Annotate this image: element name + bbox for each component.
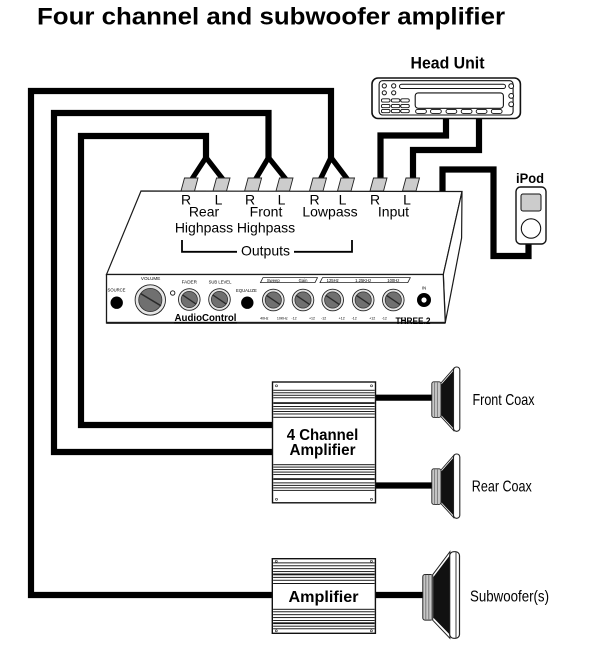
svg-text:-12: -12 <box>352 317 357 321</box>
svg-text:Gain: Gain <box>299 278 309 283</box>
svg-text:Amplifier: Amplifier <box>290 442 356 459</box>
svg-text:100Hz: 100Hz <box>387 278 399 283</box>
svg-text:THREE.2: THREE.2 <box>396 316 431 327</box>
svg-text:Front: Front <box>250 204 283 220</box>
svg-text:Four channel and subwoofer amp: Four channel and subwoofer amplifier <box>37 4 505 31</box>
svg-text:iPod: iPod <box>516 171 544 186</box>
svg-text:Rear: Rear <box>189 204 220 220</box>
svg-text:+12: +12 <box>369 317 375 321</box>
svg-text:-12: -12 <box>291 317 296 321</box>
svg-text:-12: -12 <box>382 317 387 321</box>
svg-text:-12: -12 <box>321 317 326 321</box>
svg-text:Rear Coax: Rear Coax <box>472 479 532 496</box>
svg-text:Highpass: Highpass <box>175 220 233 236</box>
svg-text:Front Coax: Front Coax <box>473 392 535 409</box>
svg-text:+12: +12 <box>339 317 345 321</box>
svg-text:10KHz: 10KHz <box>277 317 288 321</box>
svg-text:125Hz: 125Hz <box>327 278 339 283</box>
svg-text:EQUALIZE: EQUALIZE <box>236 288 257 293</box>
svg-text:IN: IN <box>422 286 426 291</box>
svg-text:40Hz: 40Hz <box>260 317 269 321</box>
svg-text:Lowpass: Lowpass <box>302 204 357 220</box>
svg-text:SOURCE: SOURCE <box>108 288 126 293</box>
svg-text:Head Unit: Head Unit <box>411 55 485 73</box>
svg-text:Highpass: Highpass <box>237 220 295 236</box>
svg-text:+12: +12 <box>309 317 315 321</box>
svg-text:Outputs: Outputs <box>241 243 290 259</box>
svg-text:FADER: FADER <box>182 279 198 284</box>
svg-text:1.25KHz: 1.25KHz <box>355 278 371 283</box>
svg-text:Sweep: Sweep <box>267 278 280 283</box>
svg-text:Amplifier: Amplifier <box>289 589 359 606</box>
svg-text:Subwoofer(s): Subwoofer(s) <box>470 589 549 606</box>
svg-text:SUB LEVEL: SUB LEVEL <box>209 279 232 284</box>
svg-text:VOLUME: VOLUME <box>141 276 160 281</box>
svg-text:Input: Input <box>378 204 409 220</box>
